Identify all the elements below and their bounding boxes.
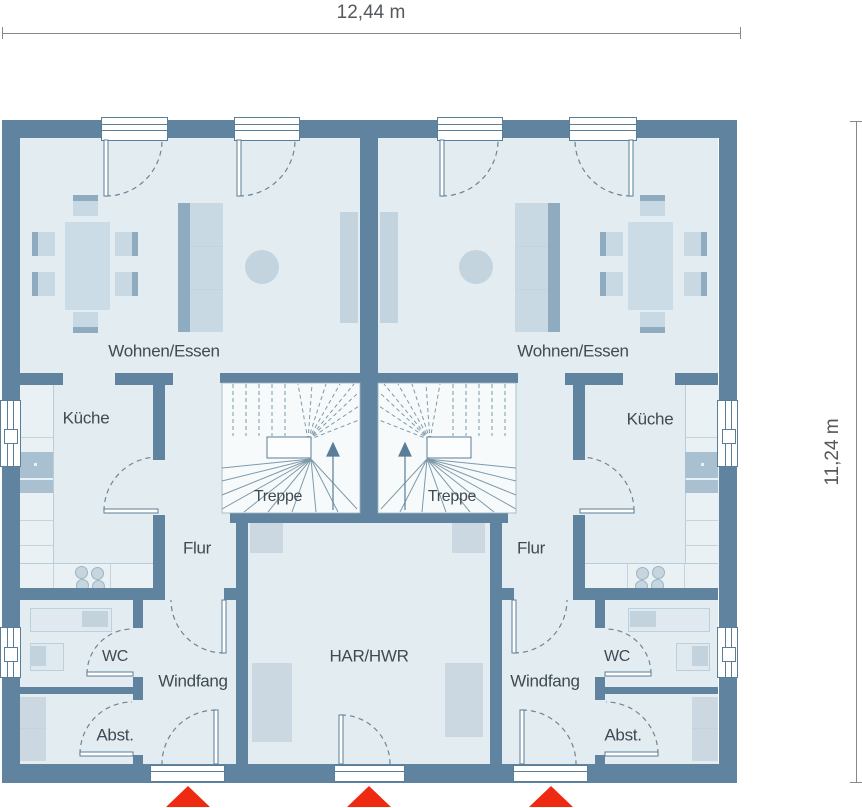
room-label-wc-left: WC bbox=[102, 649, 128, 665]
dimension-height-label: 11,24 m bbox=[822, 418, 844, 485]
room-label-vestibule-left: Windfang bbox=[158, 673, 227, 690]
dimension-line-right bbox=[856, 121, 857, 783]
dimension-tick bbox=[740, 27, 741, 39]
entrance-marker bbox=[347, 786, 391, 807]
room-label-hall-left: Flur bbox=[183, 540, 211, 557]
room-label-stairs-left: Treppe bbox=[254, 489, 302, 505]
plan-linework bbox=[0, 0, 862, 808]
room-label-storage-right: Abst. bbox=[604, 727, 641, 744]
room-label-vestibule-right: Windfang bbox=[510, 673, 579, 690]
room-label-living-right: Wohnen/Essen bbox=[517, 343, 628, 360]
dimension-tick bbox=[2, 27, 3, 39]
room-label-utility: HAR/HWR bbox=[329, 648, 408, 665]
stair-landing bbox=[267, 437, 311, 458]
room-label-kitchen-right: Küche bbox=[627, 411, 674, 428]
room-label-wc-right: WC bbox=[604, 649, 630, 665]
room-label-stairs-right: Treppe bbox=[428, 489, 476, 505]
entrance-marker bbox=[529, 786, 573, 807]
door-swing-arc bbox=[80, 140, 658, 764]
dimension-tick bbox=[850, 782, 862, 783]
room-label-hall-right: Flur bbox=[517, 540, 545, 557]
stair-landing bbox=[427, 437, 471, 458]
door-leaf bbox=[80, 140, 658, 764]
dimension-width-label: 12,44 m bbox=[337, 2, 406, 24]
entrance-marker bbox=[166, 786, 210, 807]
room-label-living-left: Wohnen/Essen bbox=[108, 343, 219, 360]
room-label-storage-left: Abst. bbox=[96, 727, 133, 744]
floor-plan: Wohnen/Essen Wohnen/Essen Küche Küche Tr… bbox=[0, 0, 862, 808]
room-label-kitchen-left: Küche bbox=[63, 410, 110, 427]
dimension-line-top bbox=[2, 33, 741, 34]
dimension-tick bbox=[850, 121, 862, 122]
